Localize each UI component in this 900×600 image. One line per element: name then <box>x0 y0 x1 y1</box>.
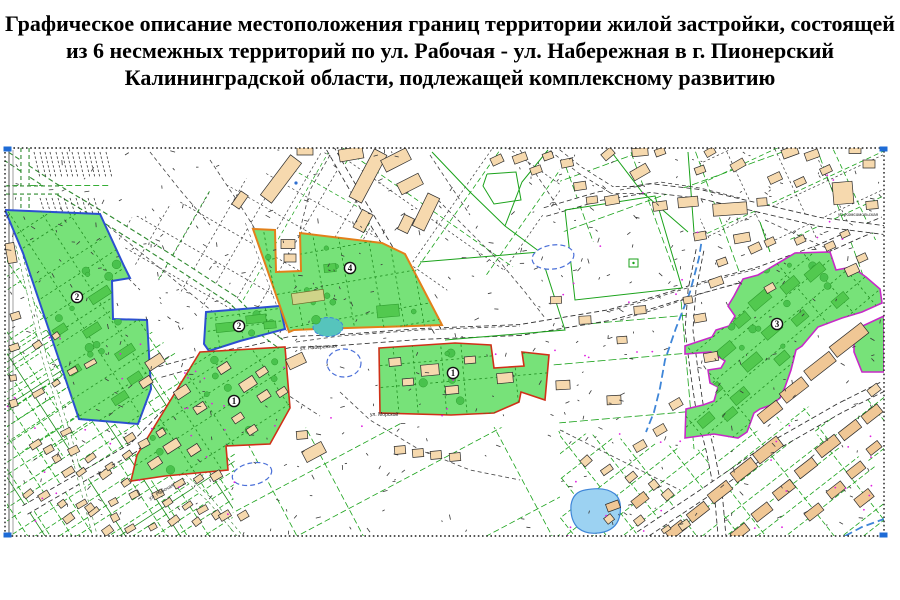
svg-text:3: 3 <box>775 319 780 329</box>
svg-text:ул. Морской: ул. Морской <box>370 411 398 418</box>
svg-text:2: 2 <box>75 292 80 302</box>
svg-text:2: 2 <box>237 321 242 331</box>
svg-text:1: 1 <box>232 396 237 406</box>
svg-text:ул. Комсомольская: ул. Комсомольская <box>838 212 879 217</box>
svg-text:4: 4 <box>348 263 353 273</box>
svg-text:1: 1 <box>451 368 456 378</box>
